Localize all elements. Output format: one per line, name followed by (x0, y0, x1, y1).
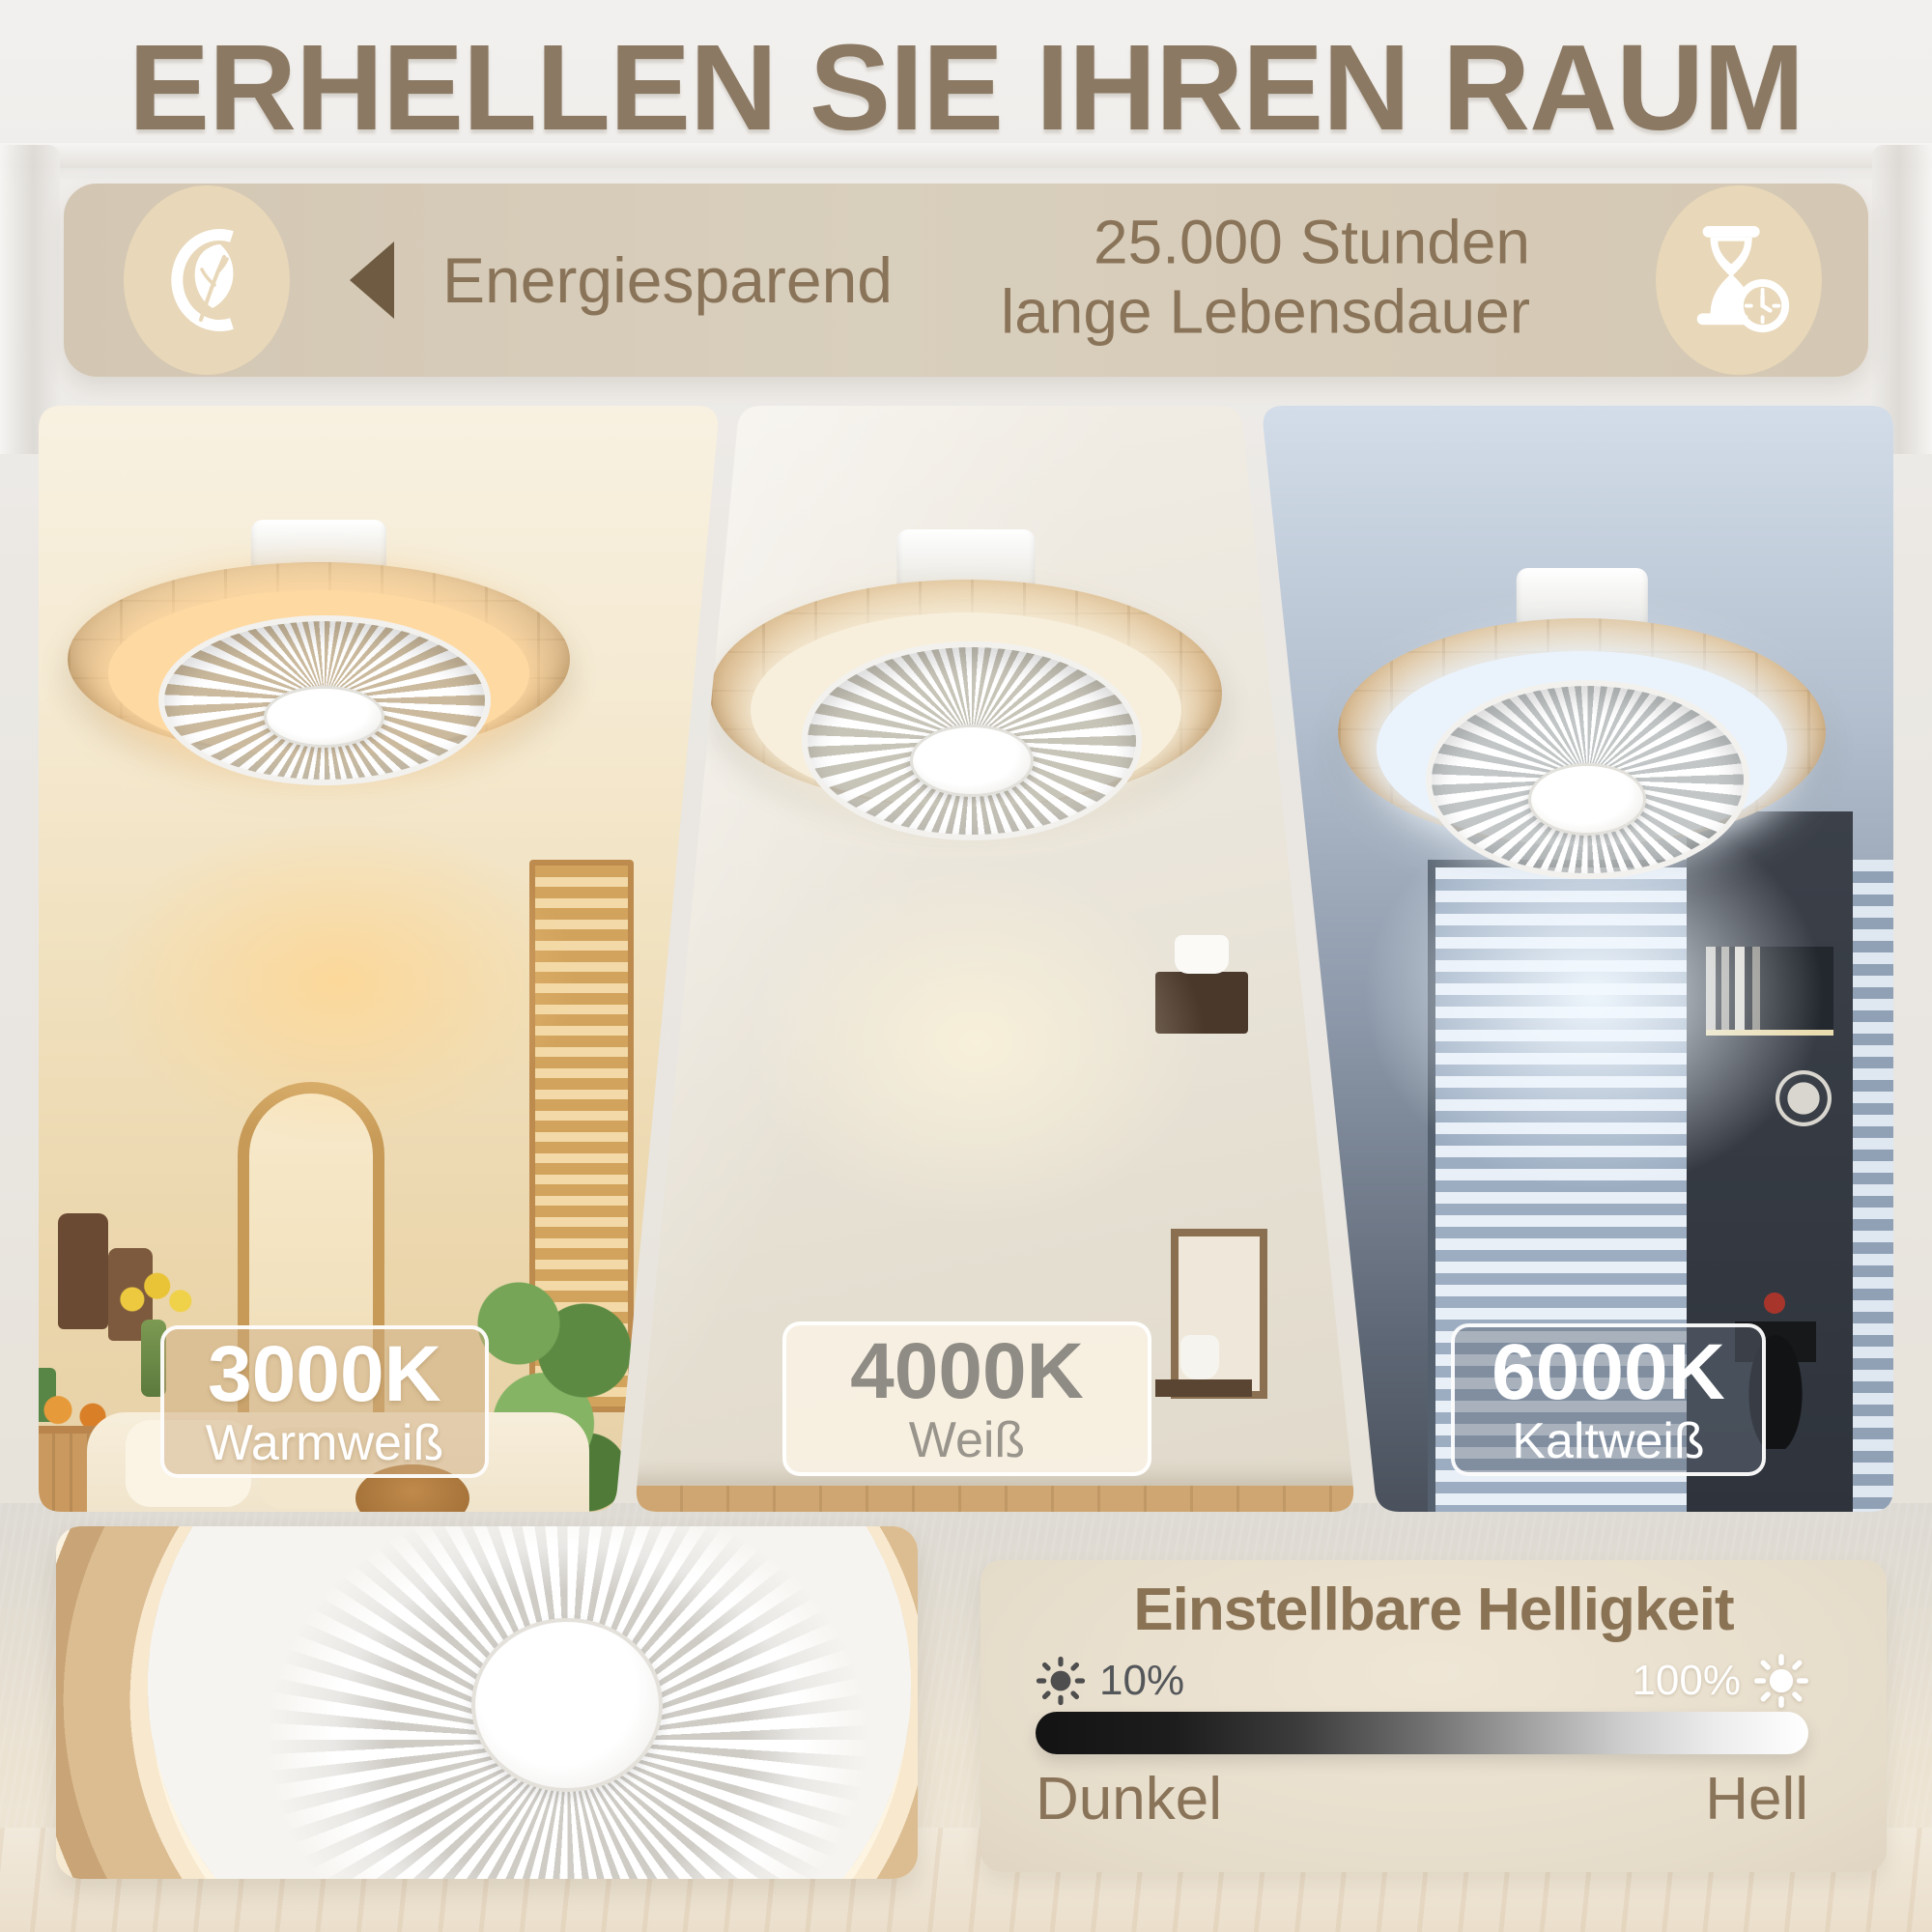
figurine-red-dot (1764, 1293, 1785, 1314)
kelvin-value: 6000K (1492, 1332, 1725, 1413)
fan-hub (1528, 763, 1646, 836)
white-vase (1180, 1335, 1219, 1379)
kelvin-value: 3000K (208, 1334, 441, 1415)
product-infographic: ERHELLEN SIE IHREN RAUM Energiesparend 2… (0, 0, 1932, 1932)
ceiling-fan-neutral (710, 529, 1222, 945)
tulip-bouquet (114, 1267, 197, 1325)
floating-shelf (1155, 1379, 1252, 1397)
cutting-board (58, 1213, 108, 1329)
fan-hub (910, 724, 1034, 797)
kelvin-label: Warmweiß (206, 1418, 444, 1469)
temp-badge-3000k: 3000K Warmweiß (160, 1325, 489, 1478)
hourglass-clock-icon (1682, 222, 1796, 338)
kelvin-label: Kaltweiß (1512, 1416, 1704, 1467)
light-label: Hell (1705, 1765, 1808, 1833)
feature-bar: Energiesparend 25.000 Stunden lange Lebe… (64, 184, 1868, 377)
temp-badge-4000k: 4000K Weiß (782, 1321, 1151, 1476)
ceiling-fan-cool (1338, 568, 1826, 983)
sun-bright-icon (1754, 1654, 1808, 1708)
fan-closeup-card (56, 1526, 918, 1879)
brightness-end-labels: Dunkel Hell (1036, 1765, 1808, 1833)
color-temperature-panels: 3000K Warmweiß (0, 406, 1932, 1512)
wood-sideboard-top (541, 1486, 1372, 1512)
kelvin-label: Weiß (909, 1415, 1025, 1466)
fan-hub (264, 686, 385, 748)
kelvin-value: 4000K (850, 1331, 1084, 1412)
temp-badge-6000k: 6000K Kaltweiß (1451, 1323, 1766, 1476)
brightness-heading: Einstellbare Helligkeit (980, 1576, 1887, 1644)
feature-lifespan-line2: lange Lebensdauer (1001, 277, 1530, 347)
min-brightness-value: 10% (1099, 1657, 1184, 1705)
leaf-icon (158, 221, 255, 339)
sun-dim-icon (1036, 1656, 1086, 1706)
max-brightness-value: 100% (1632, 1657, 1741, 1705)
brightness-card: Einstellbare Helligkeit 10% (980, 1560, 1887, 1872)
feature-lifespan-line1: 25.000 Stunden (1001, 208, 1530, 277)
feature-energy-label: Energiesparend (442, 243, 893, 317)
arrow-left-icon (350, 241, 394, 319)
fan-hub-closeup (471, 1618, 663, 1792)
dark-label: Dunkel (1036, 1765, 1222, 1833)
energy-badge (124, 185, 290, 375)
page-title: ERHELLEN SIE IHREN RAUM (0, 17, 1932, 157)
feature-lifespan-label: 25.000 Stunden lange Lebensdauer (1001, 208, 1530, 346)
brightness-gradient-bar (1036, 1712, 1808, 1754)
ceiling-fan-warm (68, 520, 570, 872)
lifespan-badge (1656, 185, 1822, 375)
brightness-scale-row: 10% 100% (1036, 1653, 1808, 1709)
